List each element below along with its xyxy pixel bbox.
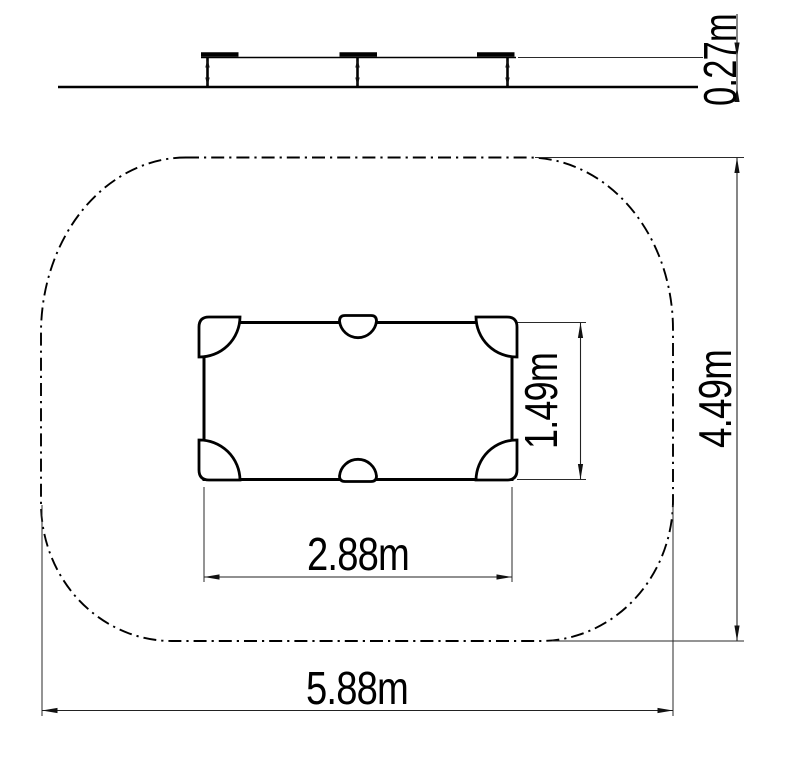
leg-end-marker bbox=[205, 59, 209, 68]
dimension-arrow bbox=[578, 464, 583, 480]
height-dimension-label: 0.27m bbox=[694, 14, 746, 106]
dimension-arrow bbox=[204, 574, 220, 579]
edge-post bbox=[340, 316, 377, 338]
leg-end-marker bbox=[505, 78, 509, 87]
dimension-arrow bbox=[734, 158, 739, 174]
dimension-arrow bbox=[497, 574, 513, 579]
platform-posts bbox=[199, 316, 517, 482]
platform-legs bbox=[205, 57, 509, 87]
safety-zone-width-dimension-label: 5.88m bbox=[306, 662, 408, 714]
side-elevation-view: 0.27m bbox=[58, 14, 746, 106]
item-depth-dimension: 1.49m bbox=[515, 323, 586, 480]
leg-end-marker bbox=[505, 59, 509, 68]
platform-outline bbox=[204, 323, 512, 480]
dimension-arrow bbox=[578, 323, 583, 339]
item-width-dimension-label: 2.88m bbox=[307, 528, 409, 580]
edge-post bbox=[340, 459, 377, 481]
item-depth-dimension-label: 1.49m bbox=[515, 353, 567, 449]
dimension-arrow bbox=[658, 708, 674, 713]
leg-end-marker bbox=[355, 78, 359, 87]
plan-view: 1.49m 2.88m 5.88m bbox=[41, 158, 744, 717]
leg-end-marker bbox=[205, 78, 209, 87]
leg-end-marker bbox=[355, 59, 359, 68]
height-dimension: 0.27m bbox=[518, 14, 746, 106]
corner-post bbox=[476, 317, 517, 357]
safety-zone-depth-dimension-label: 4.49m bbox=[689, 350, 741, 448]
item-width-dimension: 2.88m bbox=[204, 487, 512, 582]
dimension-arrow bbox=[42, 708, 58, 713]
technical-dimension-drawing: 0.27m 1.49m 2.88m bbox=[0, 0, 785, 768]
corner-post bbox=[476, 440, 517, 480]
corner-post bbox=[199, 440, 240, 480]
corner-post bbox=[199, 317, 240, 357]
dimension-arrow bbox=[734, 626, 739, 642]
